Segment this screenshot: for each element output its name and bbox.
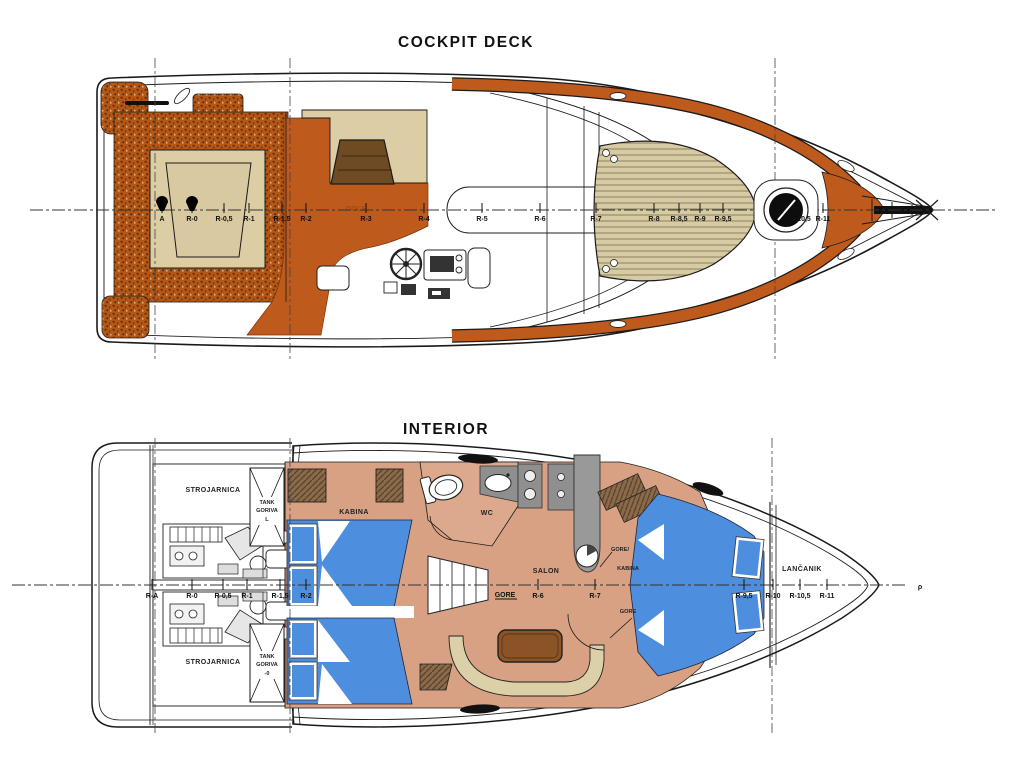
fuel-tank-label: GORIVA — [256, 508, 278, 514]
station-label: R-3 — [360, 216, 371, 223]
deck-hatch — [317, 266, 349, 290]
station-label: R-11 — [816, 216, 831, 223]
sink-icon — [485, 475, 511, 492]
yacht-deck-plans: COCKPIT DECK — [0, 0, 1024, 768]
chain-locker-label: LANČANIK — [782, 564, 822, 573]
pillow — [292, 623, 314, 655]
up-label: GORE/ — [611, 547, 629, 553]
station-label: R-1 — [243, 216, 254, 223]
pillow — [735, 540, 760, 576]
station-label: R-8,5 — [670, 216, 687, 223]
up-label: GORE — [620, 609, 637, 615]
station-label: R-9,5 — [735, 593, 752, 600]
mid-cabin-label: KABINA — [339, 509, 369, 516]
anchor-hatch — [754, 180, 818, 240]
down-label: DOLE — [346, 204, 367, 213]
engine-room-label: STROJARNICA — [186, 659, 241, 666]
salon-table — [498, 630, 562, 662]
fuel-tank-lower: TANK GORIVA -0 — [250, 624, 284, 702]
station-label: R-4 — [418, 216, 429, 223]
station-label: R-8 — [648, 216, 659, 223]
station-label: R-1,5 — [271, 593, 288, 600]
station-label: R-0 — [186, 216, 197, 223]
up-label: GORE — [495, 592, 516, 599]
station-label: R-1 — [241, 593, 252, 600]
fuel-tank-label: TANK — [259, 654, 274, 660]
companionway-stairs — [331, 140, 394, 184]
wardrobe — [376, 469, 403, 502]
pillow — [292, 527, 314, 561]
cockpit-title: COCKPIT DECK — [398, 34, 534, 51]
station-label: R-10 — [765, 593, 780, 600]
yacht-plan-page: COCKPIT DECK — [0, 0, 1024, 768]
station-label: R-7 — [590, 216, 601, 223]
station-label: R-10,5 — [789, 593, 810, 600]
station-label: R-1,5 — [273, 216, 290, 223]
station-label: R-7 — [589, 593, 600, 600]
fuel-tank-number: -0 — [265, 671, 270, 677]
fuel-tank-label: GORIVA — [256, 662, 278, 668]
station-label: A — [159, 216, 164, 223]
station-label: R-2 — [300, 216, 311, 223]
station-label: R-0 — [186, 593, 197, 600]
station-label: R-2 — [300, 593, 311, 600]
station-label: R-9,5 — [714, 216, 731, 223]
cockpit-seating — [150, 150, 265, 268]
fuel-tank-label: TANK — [259, 500, 274, 506]
helm-seat — [468, 248, 490, 288]
station-label: R-0,5 — [215, 216, 232, 223]
wc-label: WC — [481, 510, 493, 517]
cleat-icon — [610, 321, 626, 328]
engine-room-label: STROJARNICA — [186, 487, 241, 494]
interior-title: INTERIOR — [403, 421, 489, 438]
interior-plan: INTERIOR TANK — [12, 421, 923, 735]
galley-counter — [548, 464, 574, 510]
station-label: R-9 — [694, 216, 705, 223]
station-label: R-6 — [534, 216, 545, 223]
station-label: R-A — [146, 593, 158, 600]
station-label: R-6 — [532, 593, 543, 600]
wardrobe — [288, 469, 326, 502]
pillow — [292, 665, 314, 697]
centerline-end-label: ρ — [918, 584, 923, 591]
station-label: R-11 — [820, 593, 835, 600]
salon-label: SALON — [533, 568, 560, 575]
fuel-tank-upper: TANK GORIVA L — [250, 468, 284, 546]
station-label: R-0,5 — [214, 593, 231, 600]
station-label: 10,5 — [797, 216, 811, 223]
cleat-icon — [610, 93, 626, 100]
fuel-tank-number: L — [265, 517, 269, 523]
fwd-cabin-label: KABINA — [617, 566, 639, 572]
cockpit-deck-plan: COCKPIT DECK — [30, 34, 995, 362]
station-label: R-5 — [476, 216, 487, 223]
